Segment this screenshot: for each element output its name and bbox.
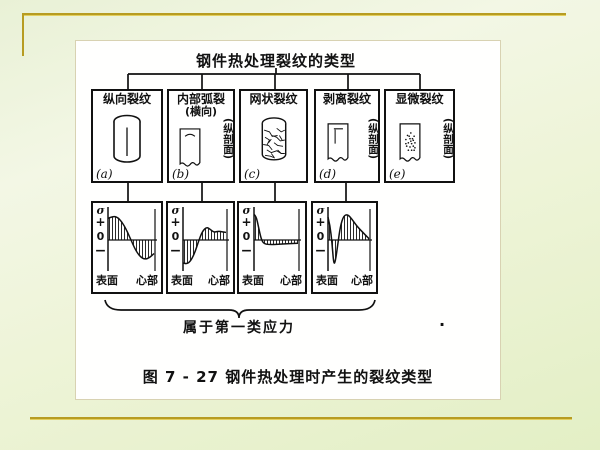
type-box-b: 内部弧裂 (横向) (纵剖面) (b) [167,89,235,183]
surface-label: 表面 [242,272,264,288]
zero-label: 0 [314,231,327,242]
core-label: 心部 [136,272,158,288]
minus-label: − [94,244,107,258]
section-note: (纵剖面) [443,118,454,159]
cylinder-longitudinal-crack-icon [107,113,147,167]
core-label: 心部 [280,272,302,288]
plus-label: + [314,216,327,228]
type-label: 网状裂纹 [241,93,306,106]
type-label: 剥离裂纹 [316,93,378,106]
plus-label: + [169,216,182,228]
surface-label: 表面 [96,272,118,288]
type-letter: (d) [319,167,336,181]
cylinder-network-crack-icon [256,113,292,167]
type-letter: (e) [389,167,405,181]
top-accent-line [22,13,566,15]
brace-label: 属于第一类应力 [119,317,359,337]
type-box-d: 剥离裂纹 (纵剖面) (d) [314,89,380,183]
type-letter: (a) [96,167,113,181]
slide-background: 钢件热处理裂纹的类型 属于第一类应力 图 7 - 27 钢件热处理时产生的裂纹类… [0,0,600,450]
stray-dot: . [439,311,445,330]
section-note: (纵剖面) [368,118,379,159]
type-box-c: 网状裂纹 (c) [239,89,308,183]
type-letter: (b) [172,167,189,181]
section-micro-cracks-icon [396,118,424,166]
left-accent-line [22,13,24,56]
type-label: 纵向裂纹 [93,93,161,106]
section-arc-crack-icon [176,124,204,170]
figure-caption: 图 7 - 27 钢件热处理时产生的裂纹类型 [76,366,500,387]
zero-label: 0 [94,231,107,242]
plus-label: + [240,216,253,228]
plus-label: + [94,216,107,228]
stress-box-c: σ + 0 − 表面 心部 [237,201,307,294]
surface-label: 表面 [171,272,193,288]
figure-panel: 钢件热处理裂纹的类型 属于第一类应力 图 7 - 27 钢件热处理时产生的裂纹类… [75,40,501,400]
minus-label: − [240,244,253,258]
minus-label: − [169,244,182,258]
stress-box-d: σ + 0 − 表面 心部 [311,201,378,294]
minus-label: − [314,244,327,258]
type-box-e: 显微裂纹 (纵剖面) (e) [384,89,455,183]
core-label: 心部 [208,272,230,288]
stress-box-b: σ + 0 − 表面 心部 [166,201,235,294]
figure-title: 钢件热处理裂纹的类型 [79,50,473,71]
surface-label: 表面 [316,272,338,288]
section-peel-crack-icon [324,118,352,166]
type-label: 显微裂纹 [386,93,453,106]
core-label: 心部 [351,272,373,288]
section-note: (纵剖面) [223,118,234,159]
bottom-accent-line [30,417,572,419]
zero-label: 0 [169,231,182,242]
type-sublabel: (横向) [169,106,233,118]
stress-box-a: σ + 0 − 表面 心部 [91,201,163,294]
type-letter: (c) [244,167,260,181]
type-box-a: 纵向裂纹 (a) [91,89,163,183]
zero-label: 0 [240,231,253,242]
